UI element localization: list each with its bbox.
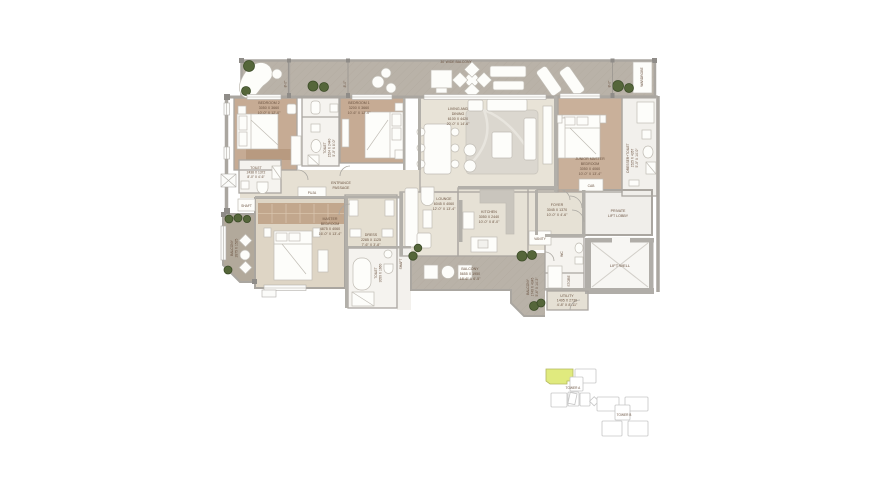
svg-text:PASSAGE: PASSAGE	[333, 186, 351, 190]
svg-text:8'-0": 8'-0"	[284, 80, 288, 88]
svg-text:DRESSER+TOILET: DRESSER+TOILET	[626, 143, 630, 172]
svg-text:5'-0" X 8'-0": 5'-0" X 8'-0"	[332, 139, 336, 157]
svg-text:1740 X 4345: 1740 X 4345	[531, 277, 535, 296]
svg-text:TOWER B: TOWER B	[617, 413, 632, 417]
svg-text:LIFT WELL: LIFT WELL	[610, 263, 631, 268]
svg-text:30' WIDE BALCONY: 30' WIDE BALCONY	[440, 60, 472, 64]
svg-text:WC: WC	[560, 251, 564, 257]
svg-text:BEDROOM: BEDROOM	[581, 162, 600, 166]
svg-text:8'-0": 8'-0"	[608, 80, 612, 88]
svg-text:DRESS: DRESS	[365, 233, 378, 237]
svg-text:6100 X 4420: 6100 X 4420	[448, 117, 468, 121]
svg-text:SHAFT: SHAFT	[399, 259, 403, 270]
svg-text:10'-6" X 12'-0": 10'-6" X 12'-0"	[348, 111, 371, 115]
svg-text:8'-0" X 4'-6": 8'-0" X 4'-6"	[247, 175, 265, 179]
svg-text:3050 X 3660: 3050 X 3660	[259, 106, 279, 110]
svg-text:DINING: DINING	[452, 112, 465, 116]
svg-text:1495 X 2730: 1495 X 2730	[557, 299, 577, 303]
svg-text:ENTRANCE: ENTRANCE	[331, 181, 351, 185]
svg-text:10'-0" X 13'-4": 10'-0" X 13'-4"	[579, 172, 602, 176]
svg-text:20'-0" X 14'-6": 20'-0" X 14'-6"	[447, 122, 470, 126]
svg-text:MASTER: MASTER	[323, 217, 338, 221]
svg-text:2438 X 1372: 2438 X 1372	[247, 171, 266, 175]
svg-text:7'-6" X 3'-8": 7'-6" X 3'-8"	[362, 243, 381, 247]
svg-text:SHAFT: SHAFT	[241, 204, 252, 208]
svg-text:BEDROOM: BEDROOM	[321, 222, 340, 226]
svg-text:KITCHEN: KITCHEN	[481, 210, 497, 214]
svg-text:BEDROOM 2: BEDROOM 2	[258, 101, 280, 105]
svg-text:BALCONY: BALCONY	[461, 267, 479, 271]
svg-text:1524 X 2440: 1524 X 2440	[328, 138, 332, 157]
svg-text:TOWER A: TOWER A	[566, 386, 582, 390]
svg-text:VANITY: VANITY	[534, 237, 546, 241]
svg-text:TOILET: TOILET	[250, 166, 261, 170]
svg-text:18'-6" X 6'-5": 18'-6" X 6'-5"	[460, 277, 481, 281]
svg-text:10'-0" X 12'-0": 10'-0" X 12'-0"	[258, 111, 281, 115]
svg-text:16'-0" X 13'-4": 16'-0" X 13'-4"	[319, 232, 342, 236]
svg-text:1525 X 4267: 1525 X 4267	[631, 148, 635, 167]
svg-text:2875 X 1525: 2875 X 1525	[235, 238, 239, 257]
svg-text:WARDROBE: WARDROBE	[640, 67, 644, 87]
svg-text:3050 X 4060: 3050 X 4060	[580, 167, 600, 171]
svg-text:5655 X 1950: 5655 X 1950	[460, 272, 480, 276]
svg-text:3050 X 1660: 3050 X 1660	[379, 263, 383, 282]
svg-text:5'-0" X 14'-0": 5'-0" X 14'-0"	[635, 148, 639, 168]
svg-text:LOUNGE: LOUNGE	[436, 197, 452, 201]
svg-text:3045 X 1370: 3045 X 1370	[547, 208, 567, 212]
svg-text:UTILITY: UTILITY	[560, 294, 574, 298]
svg-text:CAB: CAB	[588, 184, 596, 188]
svg-text:BALCONY: BALCONY	[526, 278, 530, 295]
svg-text:8'-0": 8'-0"	[343, 80, 347, 88]
svg-text:PRIVATE: PRIVATE	[611, 209, 626, 213]
svg-text:12'-0" X 13'-4": 12'-0" X 13'-4"	[433, 207, 456, 211]
svg-text:LIVING AND: LIVING AND	[448, 107, 469, 111]
svg-text:JUNIOR MASTER: JUNIOR MASTER	[575, 157, 605, 161]
svg-text:4'-8" X 8'-11": 4'-8" X 8'-11"	[557, 303, 578, 307]
svg-text:BEDROOM 1: BEDROOM 1	[348, 101, 370, 105]
svg-text:STORE: STORE	[567, 275, 571, 287]
svg-text:6045 X 4060: 6045 X 4060	[434, 202, 454, 206]
svg-text:PUJA: PUJA	[308, 191, 317, 195]
svg-text:TOILET: TOILET	[374, 267, 378, 278]
svg-text:LIFT LOBBY: LIFT LOBBY	[608, 214, 629, 218]
svg-text:BALCONY: BALCONY	[230, 239, 234, 256]
svg-text:2285 X 1125: 2285 X 1125	[361, 238, 381, 242]
svg-text:4875 X 4060: 4875 X 4060	[320, 227, 340, 231]
svg-text:FOYER: FOYER	[551, 203, 564, 207]
svg-text:10'-0" X 8'-0": 10'-0" X 8'-0"	[479, 220, 500, 224]
svg-text:3200 X 3660: 3200 X 3660	[349, 106, 369, 110]
svg-text:TOILET: TOILET	[323, 142, 327, 153]
svg-text:10'-0" X 4'-6": 10'-0" X 4'-6"	[547, 213, 568, 217]
svg-text:5'-6" X 14'-3": 5'-6" X 14'-3"	[535, 277, 539, 297]
svg-text:3050 X 2440: 3050 X 2440	[479, 215, 499, 219]
